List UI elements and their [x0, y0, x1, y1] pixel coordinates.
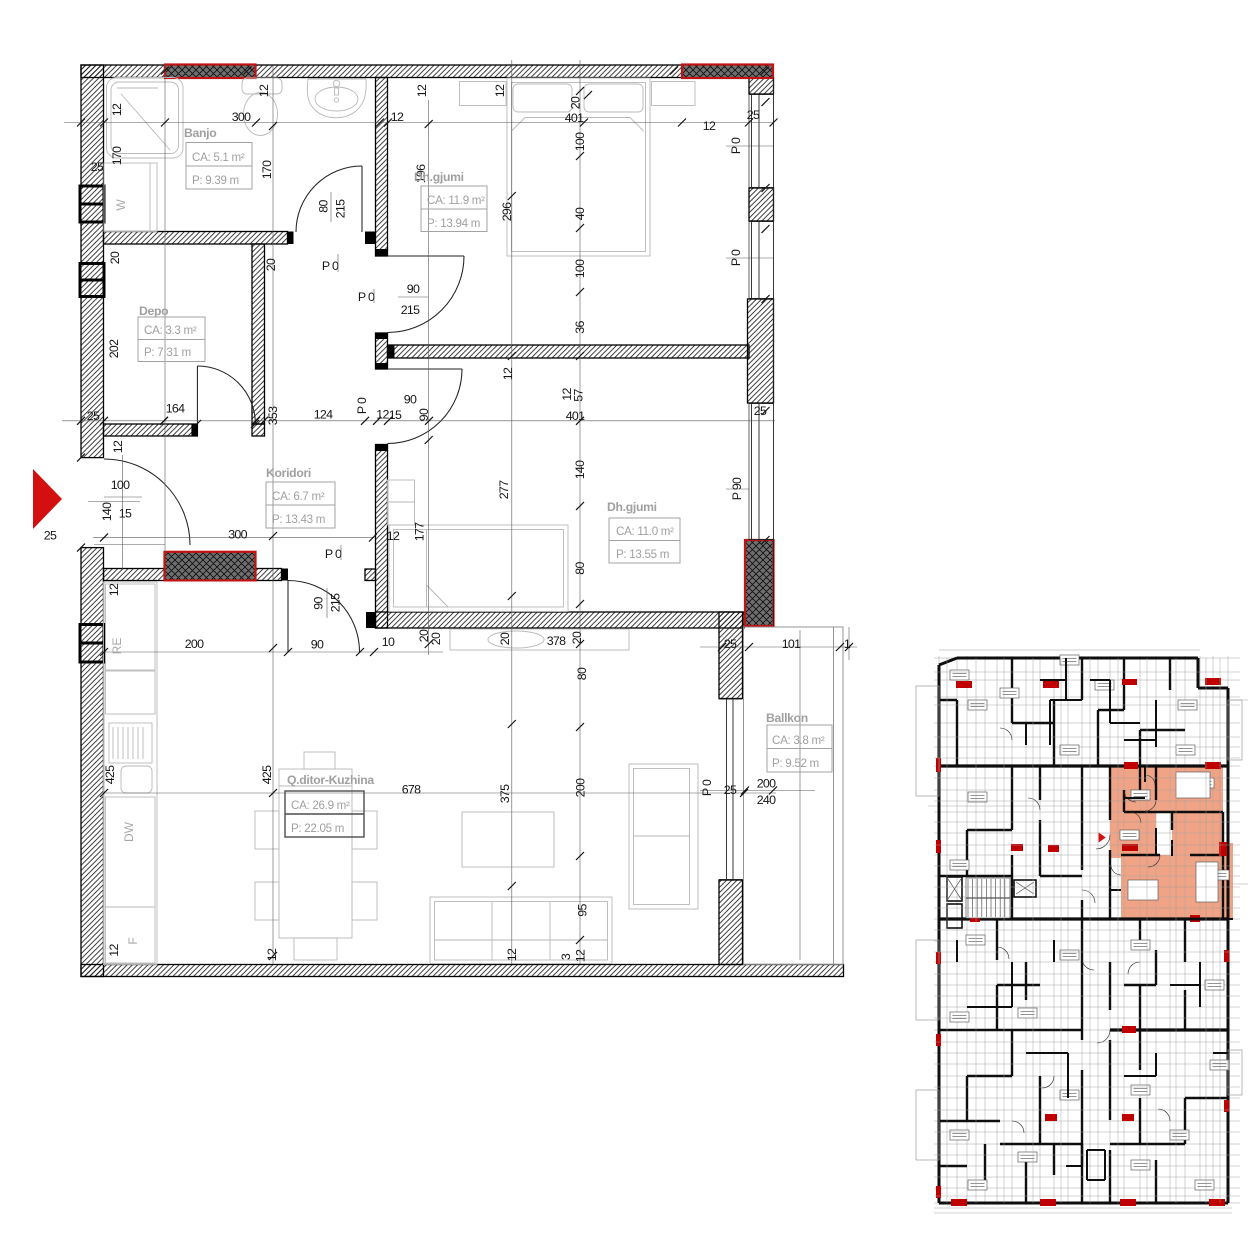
svg-text:W: W [114, 199, 128, 211]
svg-text:3: 3 [559, 953, 573, 960]
svg-text:25: 25 [724, 783, 737, 797]
svg-text:1: 1 [844, 637, 851, 651]
svg-text:P 0: P 0 [325, 547, 342, 561]
svg-text:164: 164 [166, 402, 185, 416]
svg-text:P 90: P 90 [730, 477, 744, 500]
svg-text:353: 353 [266, 406, 280, 425]
svg-text:378: 378 [547, 634, 566, 648]
svg-text:P: 9.52 m: P: 9.52 m [772, 757, 819, 770]
svg-text:401: 401 [565, 111, 584, 125]
svg-text:25: 25 [724, 637, 737, 651]
svg-text:P 0: P 0 [355, 397, 369, 414]
svg-text:Ballkon: Ballkon [766, 711, 808, 725]
svg-text:15: 15 [119, 507, 132, 521]
svg-text:12: 12 [111, 440, 125, 453]
svg-text:P 0: P 0 [322, 259, 339, 273]
svg-text:Q.ditor-Kuzhina: Q.ditor-Kuzhina [287, 773, 374, 787]
svg-text:Dh.gjumi: Dh.gjumi [607, 500, 657, 514]
svg-text:401: 401 [566, 409, 585, 423]
svg-text:12: 12 [107, 583, 121, 596]
svg-text:170: 170 [110, 146, 124, 165]
svg-text:12: 12 [415, 84, 429, 97]
svg-text:90: 90 [404, 393, 417, 407]
svg-text:12: 12 [501, 367, 515, 380]
svg-text:296: 296 [500, 202, 514, 221]
svg-text:DW: DW [122, 821, 136, 842]
svg-text:200: 200 [185, 637, 204, 651]
svg-text:CA: 6.7 m²: CA: 6.7 m² [272, 490, 325, 503]
svg-text:375: 375 [498, 784, 512, 803]
svg-text:12: 12 [387, 529, 400, 543]
svg-text:12: 12 [703, 119, 716, 133]
svg-text:CA: 5.1 m²: CA: 5.1 m² [192, 151, 245, 164]
svg-text:215: 215 [334, 199, 348, 218]
svg-text:200: 200 [757, 777, 776, 791]
svg-text:15: 15 [389, 408, 402, 422]
svg-text:20: 20 [264, 258, 278, 271]
svg-text:140: 140 [100, 502, 114, 521]
svg-text:P: 7.31 m: P: 7.31 m [144, 346, 191, 359]
svg-text:200: 200 [574, 778, 588, 797]
svg-text:425: 425 [103, 765, 117, 784]
svg-text:101: 101 [782, 637, 801, 651]
svg-text:100: 100 [573, 132, 587, 151]
svg-text:90: 90 [417, 408, 431, 421]
svg-text:10: 10 [382, 635, 395, 649]
svg-text:90: 90 [311, 638, 324, 652]
svg-text:P: 22.05 m: P: 22.05 m [291, 822, 344, 835]
svg-text:12: 12 [574, 949, 588, 962]
svg-text:Dh.gjumi: Dh.gjumi [414, 170, 464, 184]
svg-text:300: 300 [232, 110, 251, 124]
svg-text:277: 277 [497, 480, 511, 499]
svg-text:20: 20 [108, 251, 122, 264]
svg-text:P: 13.94 m: P: 13.94 m [427, 217, 480, 230]
svg-text:90: 90 [312, 597, 326, 610]
svg-text:CA: 3.8 m²: CA: 3.8 m² [772, 734, 825, 747]
svg-text:CA: 26.9 m²: CA: 26.9 m² [291, 799, 350, 812]
svg-text:20: 20 [498, 632, 512, 645]
svg-text:12: 12 [505, 948, 519, 961]
svg-text:CA: 11.0 m²: CA: 11.0 m² [616, 525, 674, 538]
svg-text:100: 100 [573, 259, 587, 278]
svg-text:215: 215 [329, 593, 343, 612]
svg-text:25: 25 [754, 404, 767, 418]
svg-text:Koridori: Koridori [266, 466, 311, 480]
svg-text:124: 124 [314, 408, 333, 422]
svg-text:177: 177 [413, 522, 427, 541]
svg-text:P: 13.43 m: P: 13.43 m [272, 513, 325, 526]
svg-text:170: 170 [260, 160, 274, 179]
svg-text:20: 20 [429, 632, 443, 645]
svg-text:90: 90 [407, 282, 420, 296]
svg-text:P 0: P 0 [729, 249, 743, 266]
svg-text:CA: 3.3 m²: CA: 3.3 m² [144, 324, 197, 337]
svg-text:80: 80 [575, 667, 589, 680]
svg-text:95: 95 [576, 904, 590, 917]
svg-text:P: 9.39 m: P: 9.39 m [192, 174, 239, 187]
svg-text:12: 12 [560, 388, 574, 401]
svg-text:425: 425 [260, 765, 274, 784]
svg-text:Depo: Depo [139, 304, 168, 318]
svg-text:215: 215 [401, 303, 420, 317]
svg-text:36: 36 [573, 321, 587, 334]
svg-text:678: 678 [402, 783, 421, 797]
svg-text:CA: 11.9 m²: CA: 11.9 m² [427, 194, 485, 207]
svg-text:240: 240 [757, 793, 776, 807]
svg-text:40: 40 [573, 207, 587, 220]
svg-text:P: 13.55 m: P: 13.55 m [616, 548, 669, 561]
svg-text:12: 12 [110, 103, 124, 116]
svg-text:12: 12 [391, 110, 404, 124]
svg-text:P 0: P 0 [358, 290, 375, 304]
svg-text:20: 20 [570, 631, 584, 644]
svg-text:Banjo: Banjo [184, 126, 216, 140]
svg-text:12: 12 [107, 944, 121, 957]
svg-text:F: F [126, 937, 140, 944]
svg-text:RE: RE [110, 638, 124, 655]
svg-text:202: 202 [107, 339, 121, 358]
svg-text:25: 25 [91, 160, 104, 174]
svg-text:100: 100 [111, 478, 130, 492]
svg-text:80: 80 [317, 200, 331, 213]
svg-text:140: 140 [573, 460, 587, 479]
svg-text:25: 25 [44, 529, 57, 543]
svg-text:P 0: P 0 [729, 137, 743, 154]
svg-text:25: 25 [87, 409, 100, 423]
svg-text:12: 12 [257, 84, 271, 97]
svg-text:12: 12 [376, 408, 389, 422]
svg-text:20: 20 [569, 96, 583, 109]
svg-text:12: 12 [265, 948, 279, 961]
svg-text:300: 300 [228, 528, 247, 542]
svg-text:12: 12 [493, 84, 507, 97]
svg-text:P 0: P 0 [700, 779, 714, 796]
svg-text:80: 80 [573, 562, 587, 575]
svg-text:25: 25 [747, 108, 760, 122]
